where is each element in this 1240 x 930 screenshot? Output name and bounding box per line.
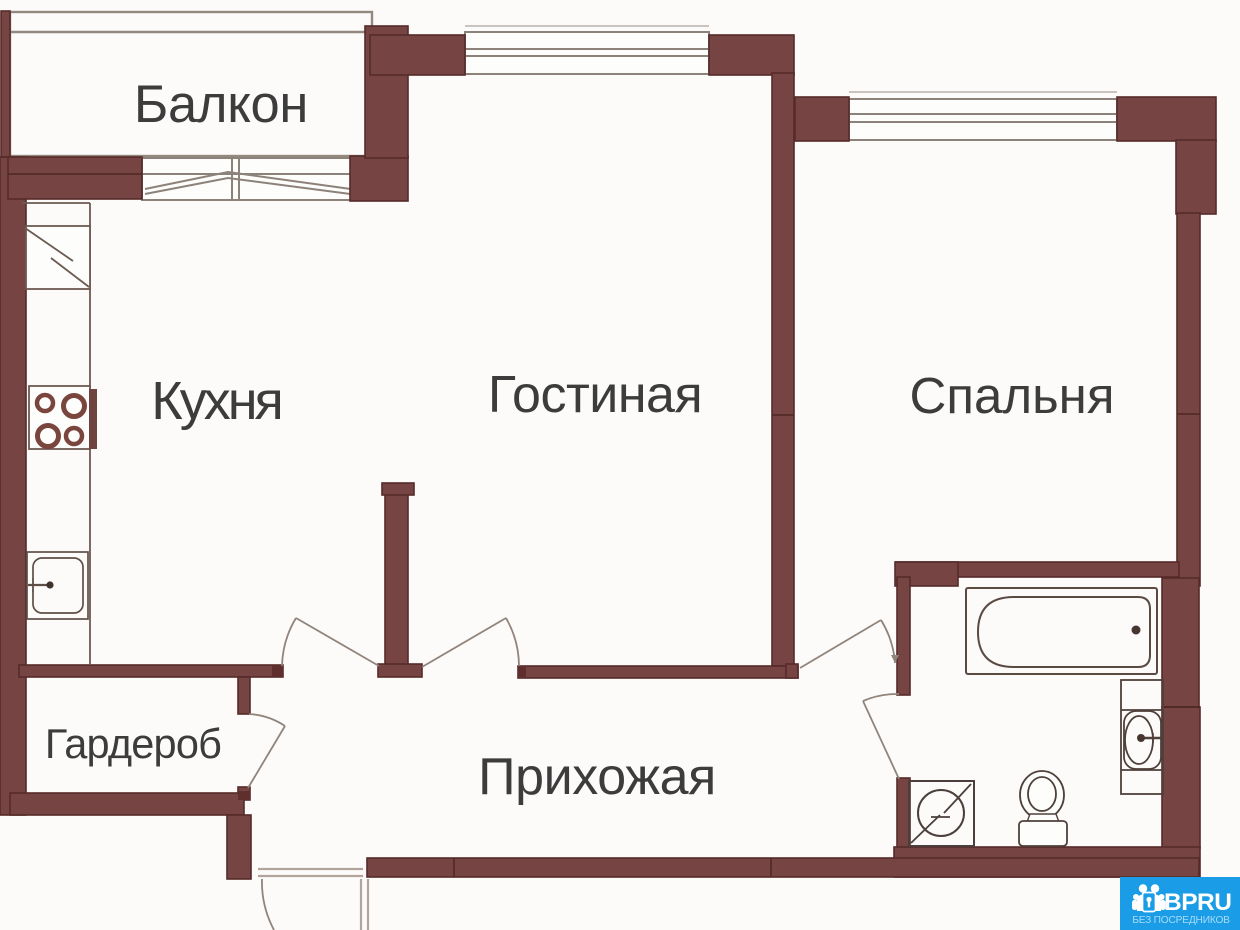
- svg-text:БЕЗ ПОСРЕДНИКОВ: БЕЗ ПОСРЕДНИКОВ: [1132, 915, 1230, 926]
- svg-text:Кухня: Кухня: [151, 371, 281, 431]
- svg-text:BPRU: BPRU: [1164, 889, 1231, 916]
- svg-text:Спальня: Спальня: [910, 367, 1115, 424]
- svg-text:Прихожая: Прихожая: [478, 748, 716, 806]
- svg-text:Гостиная: Гостиная: [488, 366, 702, 424]
- svg-text:Балкон: Балкон: [134, 75, 308, 134]
- svg-text:Гардероб: Гардероб: [45, 720, 221, 767]
